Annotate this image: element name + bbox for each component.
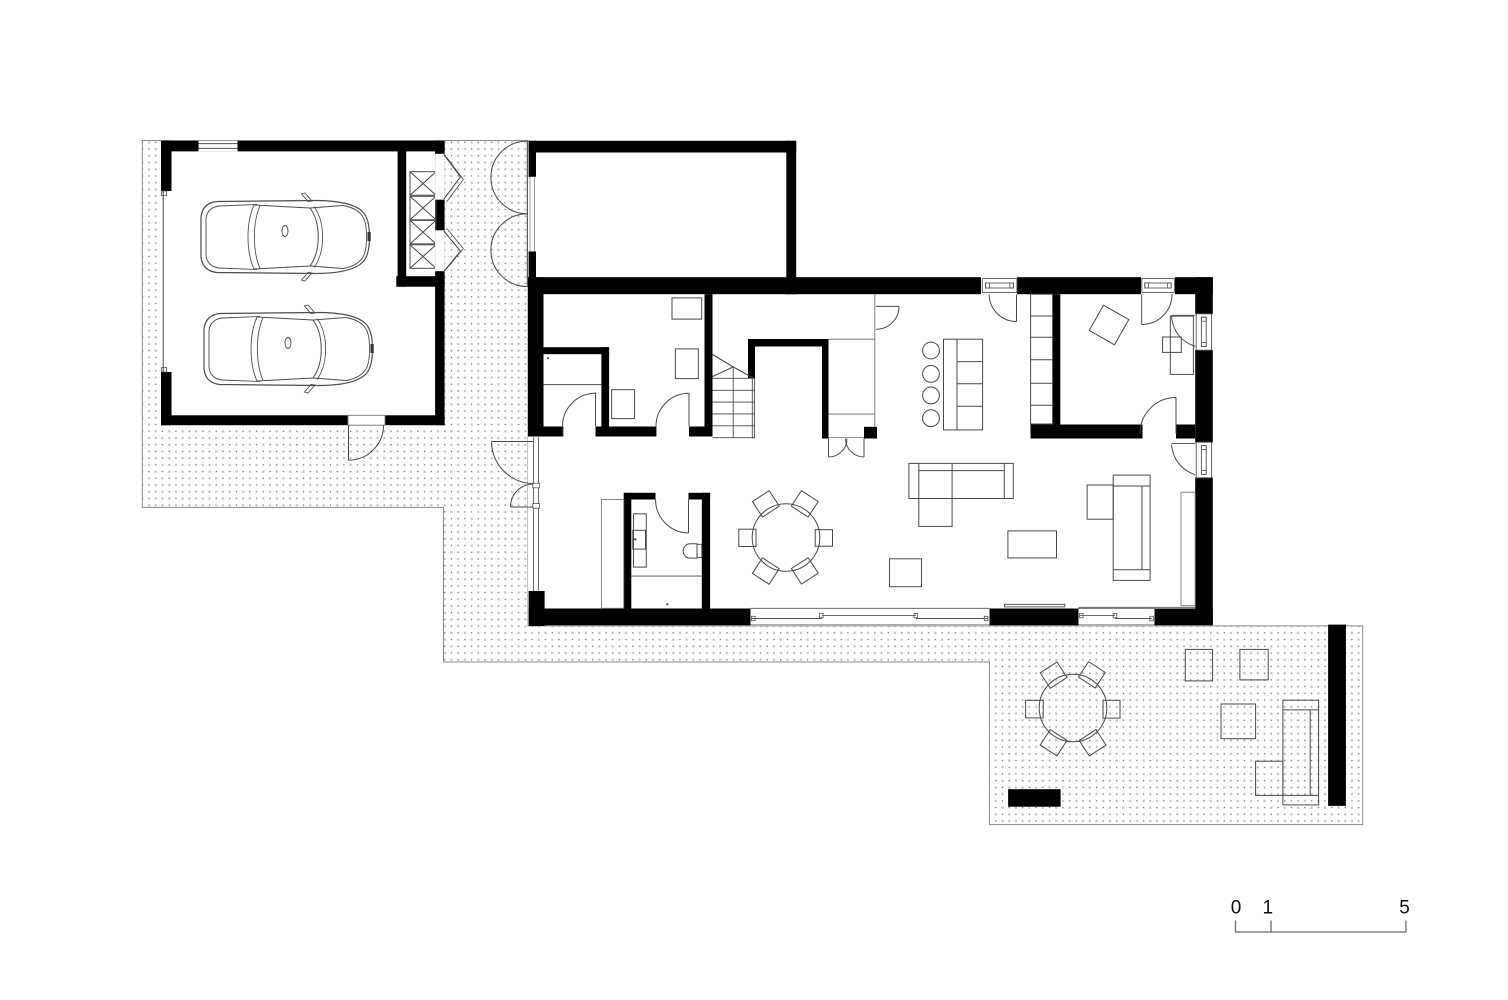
svg-text:1: 1 <box>1263 898 1274 919</box>
svg-text:5: 5 <box>1399 898 1410 919</box>
svg-text:0: 0 <box>1231 898 1242 919</box>
